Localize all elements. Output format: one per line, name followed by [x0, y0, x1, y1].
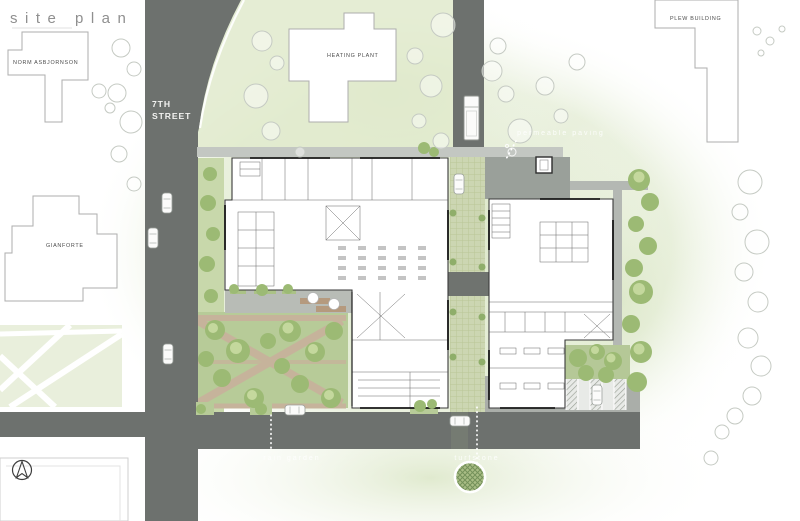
- label-gianforte: GIANFORTE: [46, 243, 84, 249]
- page-title: site plan: [10, 10, 133, 27]
- label-street-line2: STREET: [152, 111, 191, 121]
- label-rain-garden: rain garden: [263, 455, 320, 462]
- crossing-band: [444, 272, 494, 296]
- label-street-line1: 7TH: [152, 99, 171, 109]
- car: [162, 193, 172, 213]
- entry-plaza: [484, 157, 570, 199]
- label-plew-building: PLEW BUILDING: [670, 16, 721, 22]
- label-norm-asbjornson: NORM ASBJORNSON: [13, 60, 78, 66]
- building-south: [0, 458, 128, 521]
- umbrella: [329, 299, 340, 310]
- car: [285, 405, 305, 415]
- turfstone-detail: [455, 462, 485, 492]
- plaza-kiosk: [536, 157, 552, 173]
- car: [592, 385, 602, 405]
- car: [450, 416, 470, 426]
- label-turfstone: turfstone: [454, 455, 499, 462]
- label-permeable-paving: permeable paving: [517, 130, 605, 137]
- site-plan-page: site plan NORM ASBJORNSON GIANFORTE HEAT…: [0, 0, 800, 521]
- site-plan-drawing: site plan NORM ASBJORNSON GIANFORTE HEAT…: [0, 0, 800, 521]
- umbrella: [308, 293, 319, 304]
- truck: [464, 96, 479, 140]
- car: [148, 228, 158, 248]
- lawn-panels: [0, 325, 122, 407]
- label-heating-plant: HEATING PLANT: [327, 53, 379, 59]
- car: [163, 344, 173, 364]
- car: [454, 174, 464, 194]
